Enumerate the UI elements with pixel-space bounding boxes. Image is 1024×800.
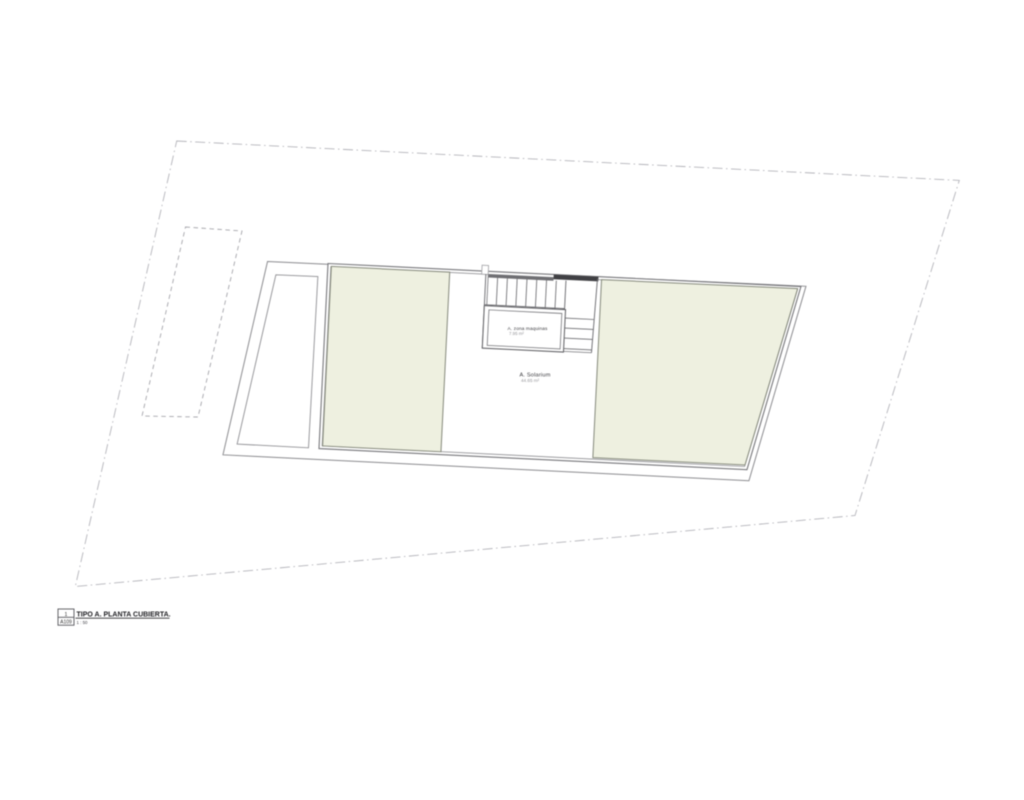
- svg-text:1: 1: [65, 612, 68, 618]
- svg-text:44.65 m²: 44.65 m²: [521, 378, 540, 383]
- svg-text:7.95 m²: 7.95 m²: [509, 331, 524, 336]
- svg-text:1 : 50: 1 : 50: [77, 620, 89, 625]
- svg-text:TIPO A. PLANTA CUBIERTA.: TIPO A. PLANTA CUBIERTA.: [77, 612, 171, 619]
- svg-text:A109: A109: [60, 620, 72, 626]
